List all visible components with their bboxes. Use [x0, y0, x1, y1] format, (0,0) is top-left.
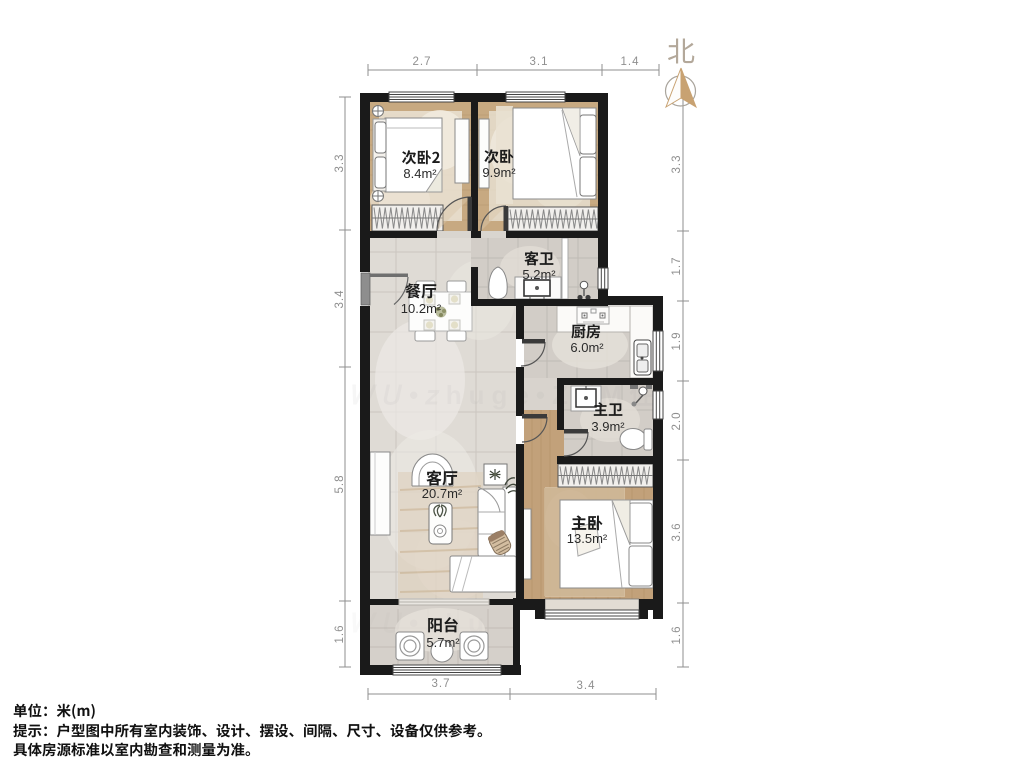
svg-text:13.5m²: 13.5m²: [567, 531, 608, 546]
svg-text:3.3: 3.3: [671, 155, 683, 174]
svg-text:9.9m²: 9.9m²: [482, 165, 516, 180]
svg-text:1.9: 1.9: [671, 332, 683, 351]
svg-text:3.3: 3.3: [334, 154, 346, 173]
svg-text:3.6: 3.6: [671, 523, 683, 542]
svg-text:2.7: 2.7: [413, 56, 432, 68]
svg-text:10.2m²: 10.2m²: [401, 301, 442, 316]
svg-text:8.4m²: 8.4m²: [403, 166, 437, 181]
svg-text:5.8: 5.8: [334, 475, 346, 494]
svg-text:5.2m²: 5.2m²: [522, 267, 556, 282]
svg-text:3.9m²: 3.9m²: [591, 419, 625, 434]
svg-text:3.1: 3.1: [530, 56, 549, 68]
svg-text:5.7m²: 5.7m²: [426, 635, 460, 650]
svg-text:3.4: 3.4: [334, 290, 346, 309]
svg-text:3.4: 3.4: [577, 680, 596, 692]
svg-text:6.0m²: 6.0m²: [570, 340, 604, 355]
svg-text:2.0: 2.0: [671, 412, 683, 431]
svg-text:3.7: 3.7: [432, 678, 451, 690]
svg-text:1.6: 1.6: [334, 625, 346, 644]
svg-text:1.7: 1.7: [671, 257, 683, 276]
svg-text:1.4: 1.4: [621, 56, 640, 68]
svg-text:1.6: 1.6: [671, 626, 683, 645]
svg-text:20.7m²: 20.7m²: [422, 486, 463, 501]
